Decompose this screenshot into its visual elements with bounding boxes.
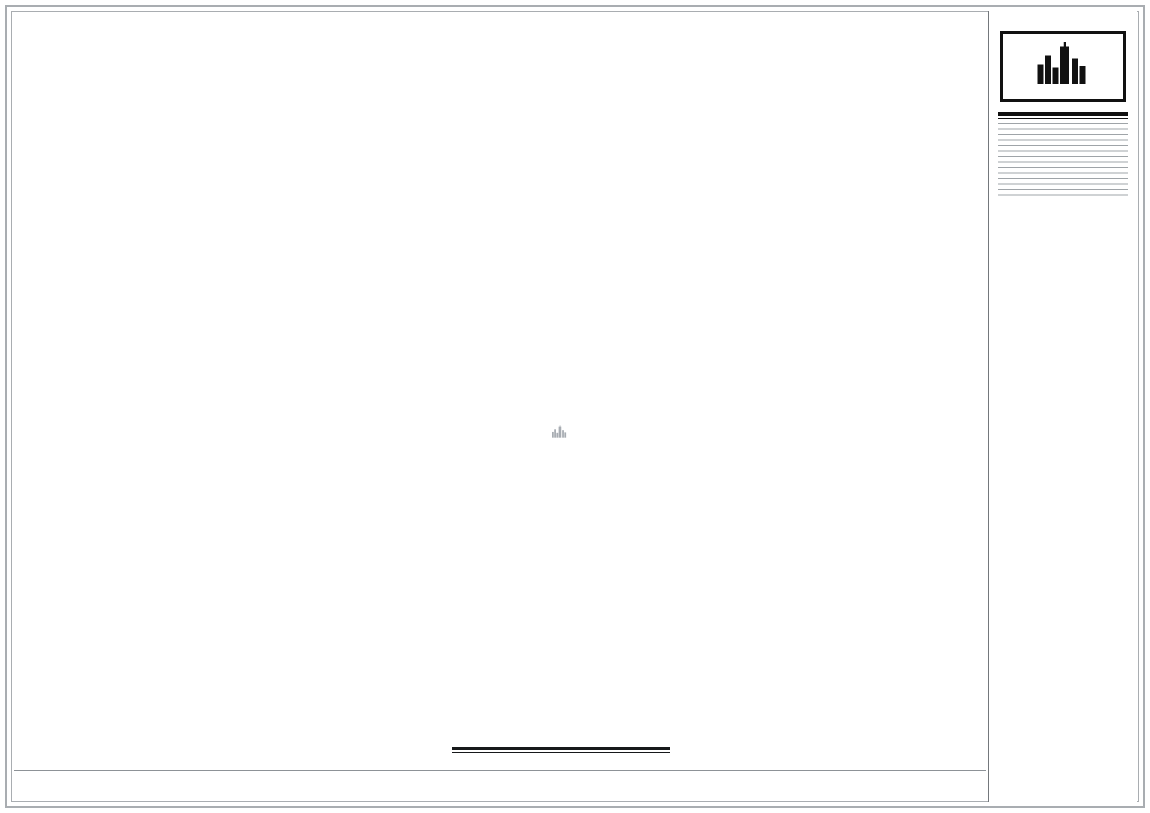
caption-underline-thick <box>452 747 670 750</box>
bottom-rule <box>14 770 986 771</box>
company-logo <box>1000 31 1126 102</box>
ruled-lines <box>998 112 1128 202</box>
caption-underline-thin <box>452 752 670 753</box>
mokchuen-logo-icon <box>552 424 567 439</box>
mokchuen-logo-icon <box>1037 42 1089 84</box>
drawing-caption <box>452 727 670 756</box>
floor-plan <box>0 0 1150 813</box>
title-block <box>988 11 1137 802</box>
watermark <box>552 424 572 439</box>
drawing-sheet: { "sheet": { "units_note": "单位:毫米 (mm)",… <box>0 0 1150 813</box>
